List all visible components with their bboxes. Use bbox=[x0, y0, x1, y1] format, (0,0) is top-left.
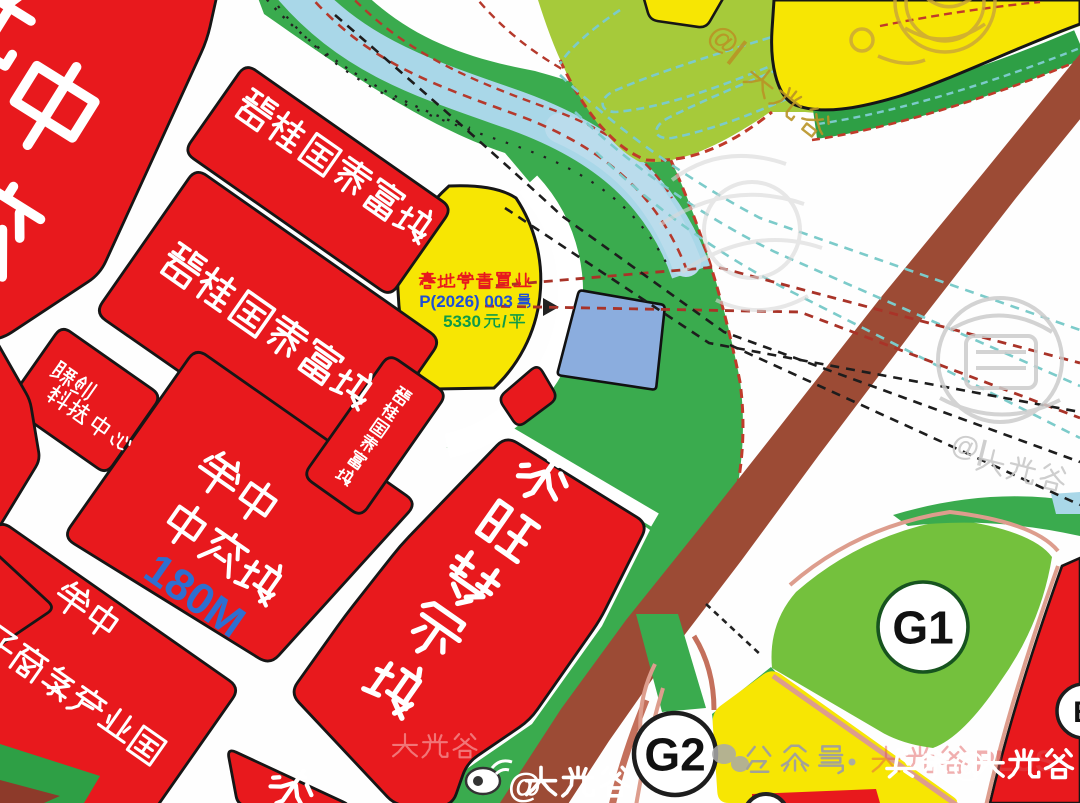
svg-text:B: B bbox=[1073, 696, 1080, 729]
svg-text:G2: G2 bbox=[644, 729, 705, 781]
svg-text:G1: G1 bbox=[892, 602, 953, 654]
svg-text:@: @ bbox=[952, 746, 985, 784]
svg-text:5330: 5330 bbox=[443, 312, 481, 331]
svg-text:/: / bbox=[502, 312, 507, 331]
svg-text:P(2026) 003: P(2026) 003 bbox=[419, 292, 513, 311]
